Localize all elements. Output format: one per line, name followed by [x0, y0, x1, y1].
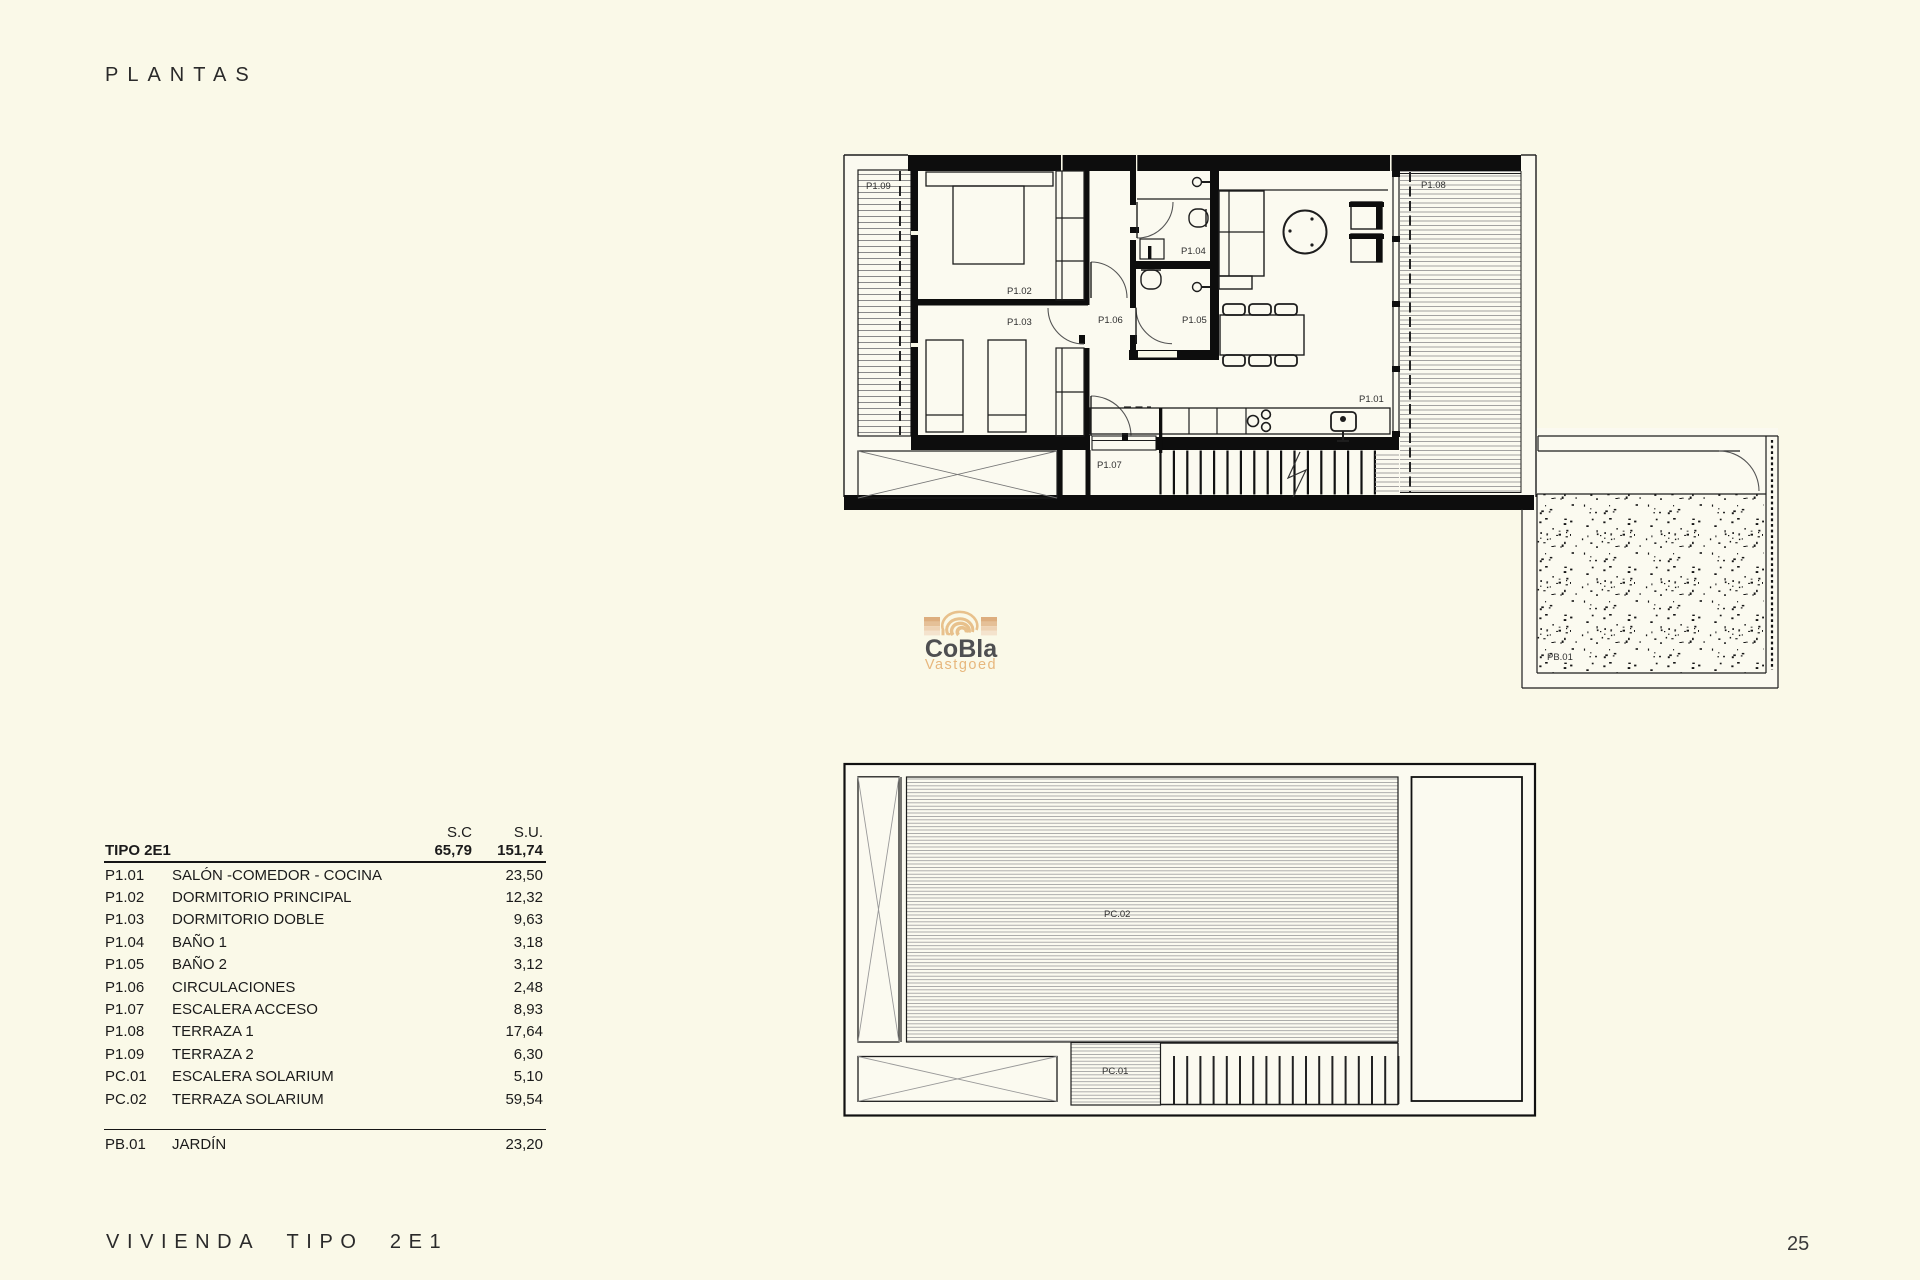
svg-text:P1.06: P1.06 — [1098, 315, 1123, 326]
svg-text:P1.01: P1.01 — [1359, 394, 1384, 405]
svg-text:P1.02: P1.02 — [1007, 286, 1032, 297]
svg-text:PC.02: PC.02 — [1104, 909, 1130, 920]
svg-text:P1.08: P1.08 — [1421, 180, 1446, 191]
svg-text:P1.05: P1.05 — [1182, 315, 1207, 326]
svg-text:P1.03: P1.03 — [1007, 317, 1032, 328]
svg-text:PC.01: PC.01 — [1102, 1066, 1128, 1077]
svg-text:P1.07: P1.07 — [1097, 460, 1122, 471]
svg-text:P1.04: P1.04 — [1181, 246, 1206, 257]
svg-text:PB.01: PB.01 — [1547, 652, 1573, 663]
svg-text:P1.09: P1.09 — [866, 181, 891, 192]
